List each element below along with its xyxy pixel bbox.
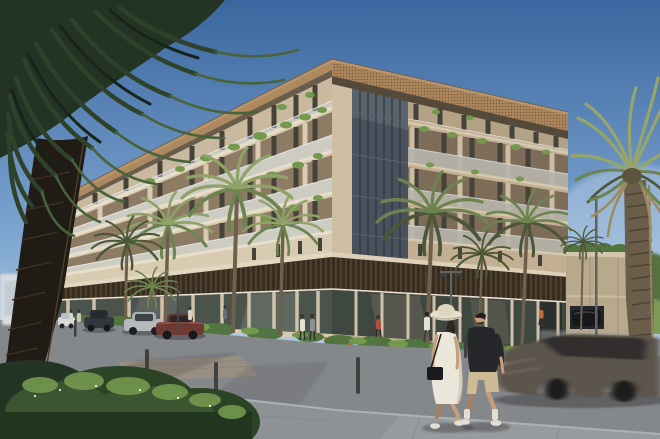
corner-curtain-wall [352,84,408,260]
rendering-canvas [0,0,660,439]
sign-pole [177,282,179,334]
man-shirt [467,327,500,373]
corner-pier [332,62,352,254]
crossbody-bag [427,367,443,380]
